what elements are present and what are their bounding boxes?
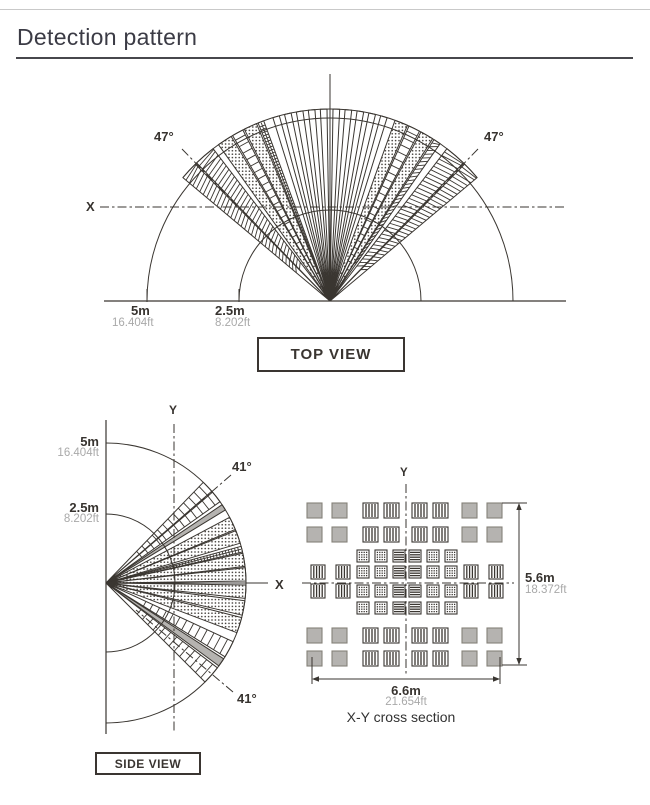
detection-pattern-page: Detection pattern 47° 47° X 5m 16.404ft … [0, 0, 650, 805]
side-view-angle-top-label: 41° [232, 460, 252, 473]
side-view-y-axis-label: Y [169, 404, 177, 416]
top-view-5m-feet-label: 16.404ft [112, 318, 154, 330]
cross-section-y-axis-label: Y [400, 468, 408, 480]
top-view-caption-box: TOP VIEW [257, 337, 405, 372]
cross-section-width-feet-label: 21.654ft [356, 697, 456, 709]
top-view-5m-label: 5m [131, 304, 150, 317]
cross-section-caption: X-Y cross section [321, 709, 481, 725]
top-view-2-5m-feet-label: 8.202ft [215, 318, 250, 330]
top-view-2-5m-label: 2.5m [215, 304, 245, 317]
cross-section-height-feet-label: 18.372ft [525, 585, 567, 597]
top-view-x-axis-label: X [86, 200, 95, 213]
top-view-angle-right-label: 47° [484, 130, 504, 143]
xy-cross-section-graphic [302, 484, 527, 684]
cross-section-height-label: 5.6m [525, 571, 555, 584]
side-view-caption-box: SIDE VIEW [95, 752, 201, 775]
top-view-fan-graphic [100, 74, 566, 302]
detection-pattern-diagram [0, 0, 650, 805]
side-view-angle-bottom-label: 41° [237, 692, 257, 705]
side-view-x-axis-label: X [275, 578, 284, 591]
side-view-2-5m-feet-label: 8.202ft [40, 514, 99, 526]
side-view-caption: SIDE VIEW [115, 757, 182, 771]
top-view-angle-left-label: 47° [154, 130, 174, 143]
side-view-5m-feet-label: 16.404ft [40, 448, 99, 460]
top-view-caption: TOP VIEW [291, 346, 372, 363]
